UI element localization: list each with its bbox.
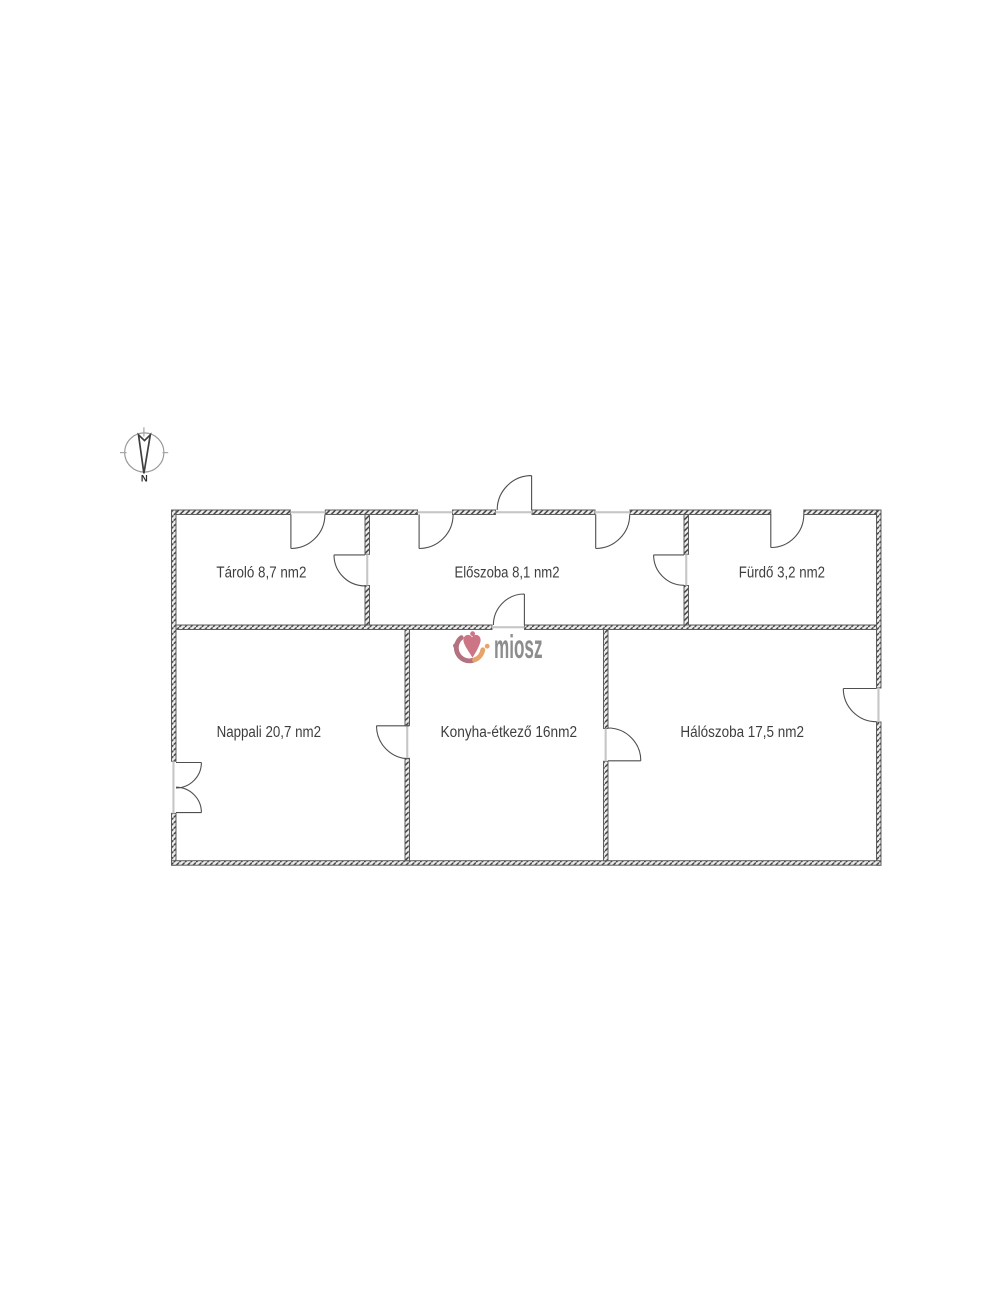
svg-text:N: N (141, 473, 148, 484)
svg-text:Nappali 20,7 nm2: Nappali 20,7 nm2 (217, 724, 321, 741)
svg-text:miosz: miosz (494, 628, 543, 665)
svg-text:Tároló 8,7 nm2: Tároló 8,7 nm2 (216, 564, 306, 581)
svg-text:Hálószoba 17,5 nm2: Hálószoba 17,5 nm2 (680, 724, 804, 741)
svg-text:Konyha-étkező 16nm2: Konyha-étkező 16nm2 (441, 724, 578, 741)
svg-text:Fürdő 3,2 nm2: Fürdő 3,2 nm2 (739, 564, 825, 581)
svg-text:Előszoba 8,1 nm2: Előszoba 8,1 nm2 (455, 564, 560, 581)
